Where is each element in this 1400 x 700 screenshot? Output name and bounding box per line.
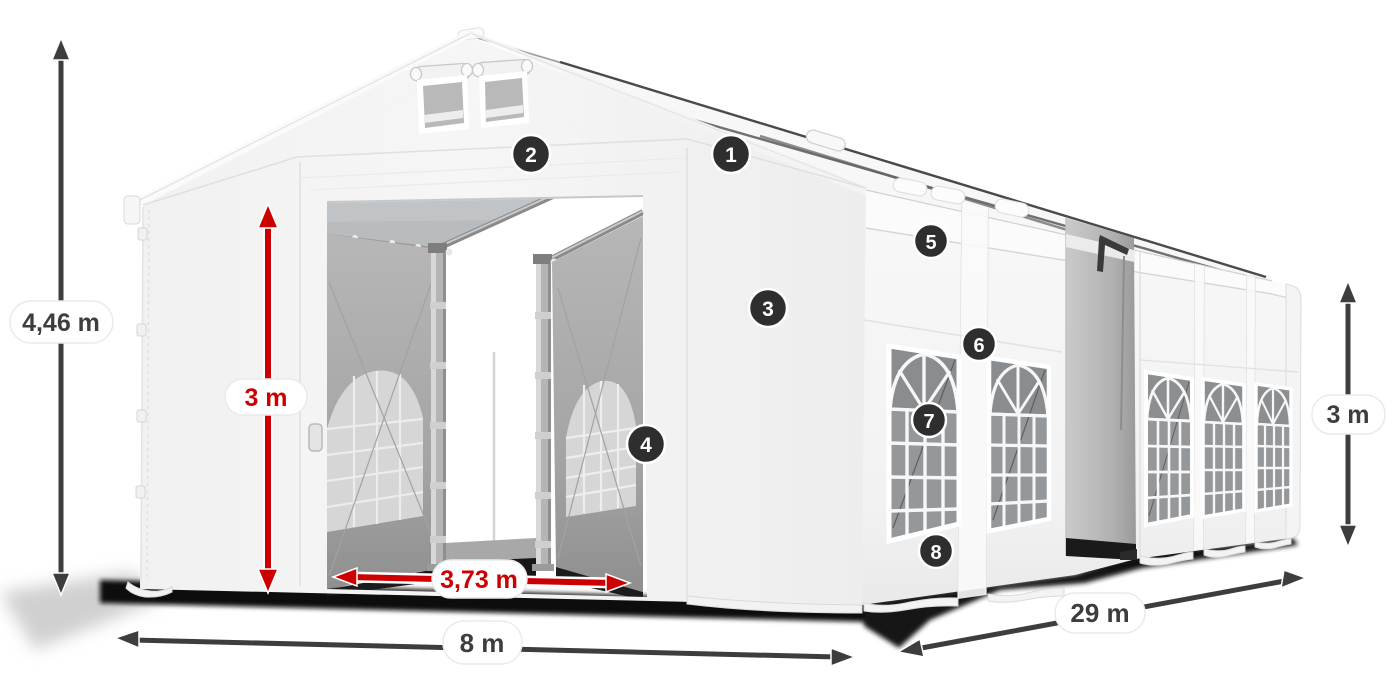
svg-text:4,46 m: 4,46 m — [22, 309, 100, 337]
svg-text:3: 3 — [762, 298, 774, 321]
svg-text:3,73 m: 3,73 m — [440, 566, 518, 594]
svg-text:7: 7 — [923, 411, 934, 433]
svg-text:2: 2 — [525, 144, 537, 167]
svg-text:4: 4 — [640, 434, 652, 457]
svg-text:29 m: 29 m — [1070, 598, 1129, 628]
svg-text:3 m: 3 m — [1326, 401, 1369, 429]
svg-text:3 m: 3 m — [244, 384, 287, 412]
svg-text:8: 8 — [930, 542, 941, 564]
svg-text:8 m: 8 m — [460, 628, 505, 658]
svg-text:1: 1 — [725, 144, 737, 167]
svg-text:5: 5 — [925, 232, 936, 254]
svg-text:6: 6 — [973, 335, 984, 357]
